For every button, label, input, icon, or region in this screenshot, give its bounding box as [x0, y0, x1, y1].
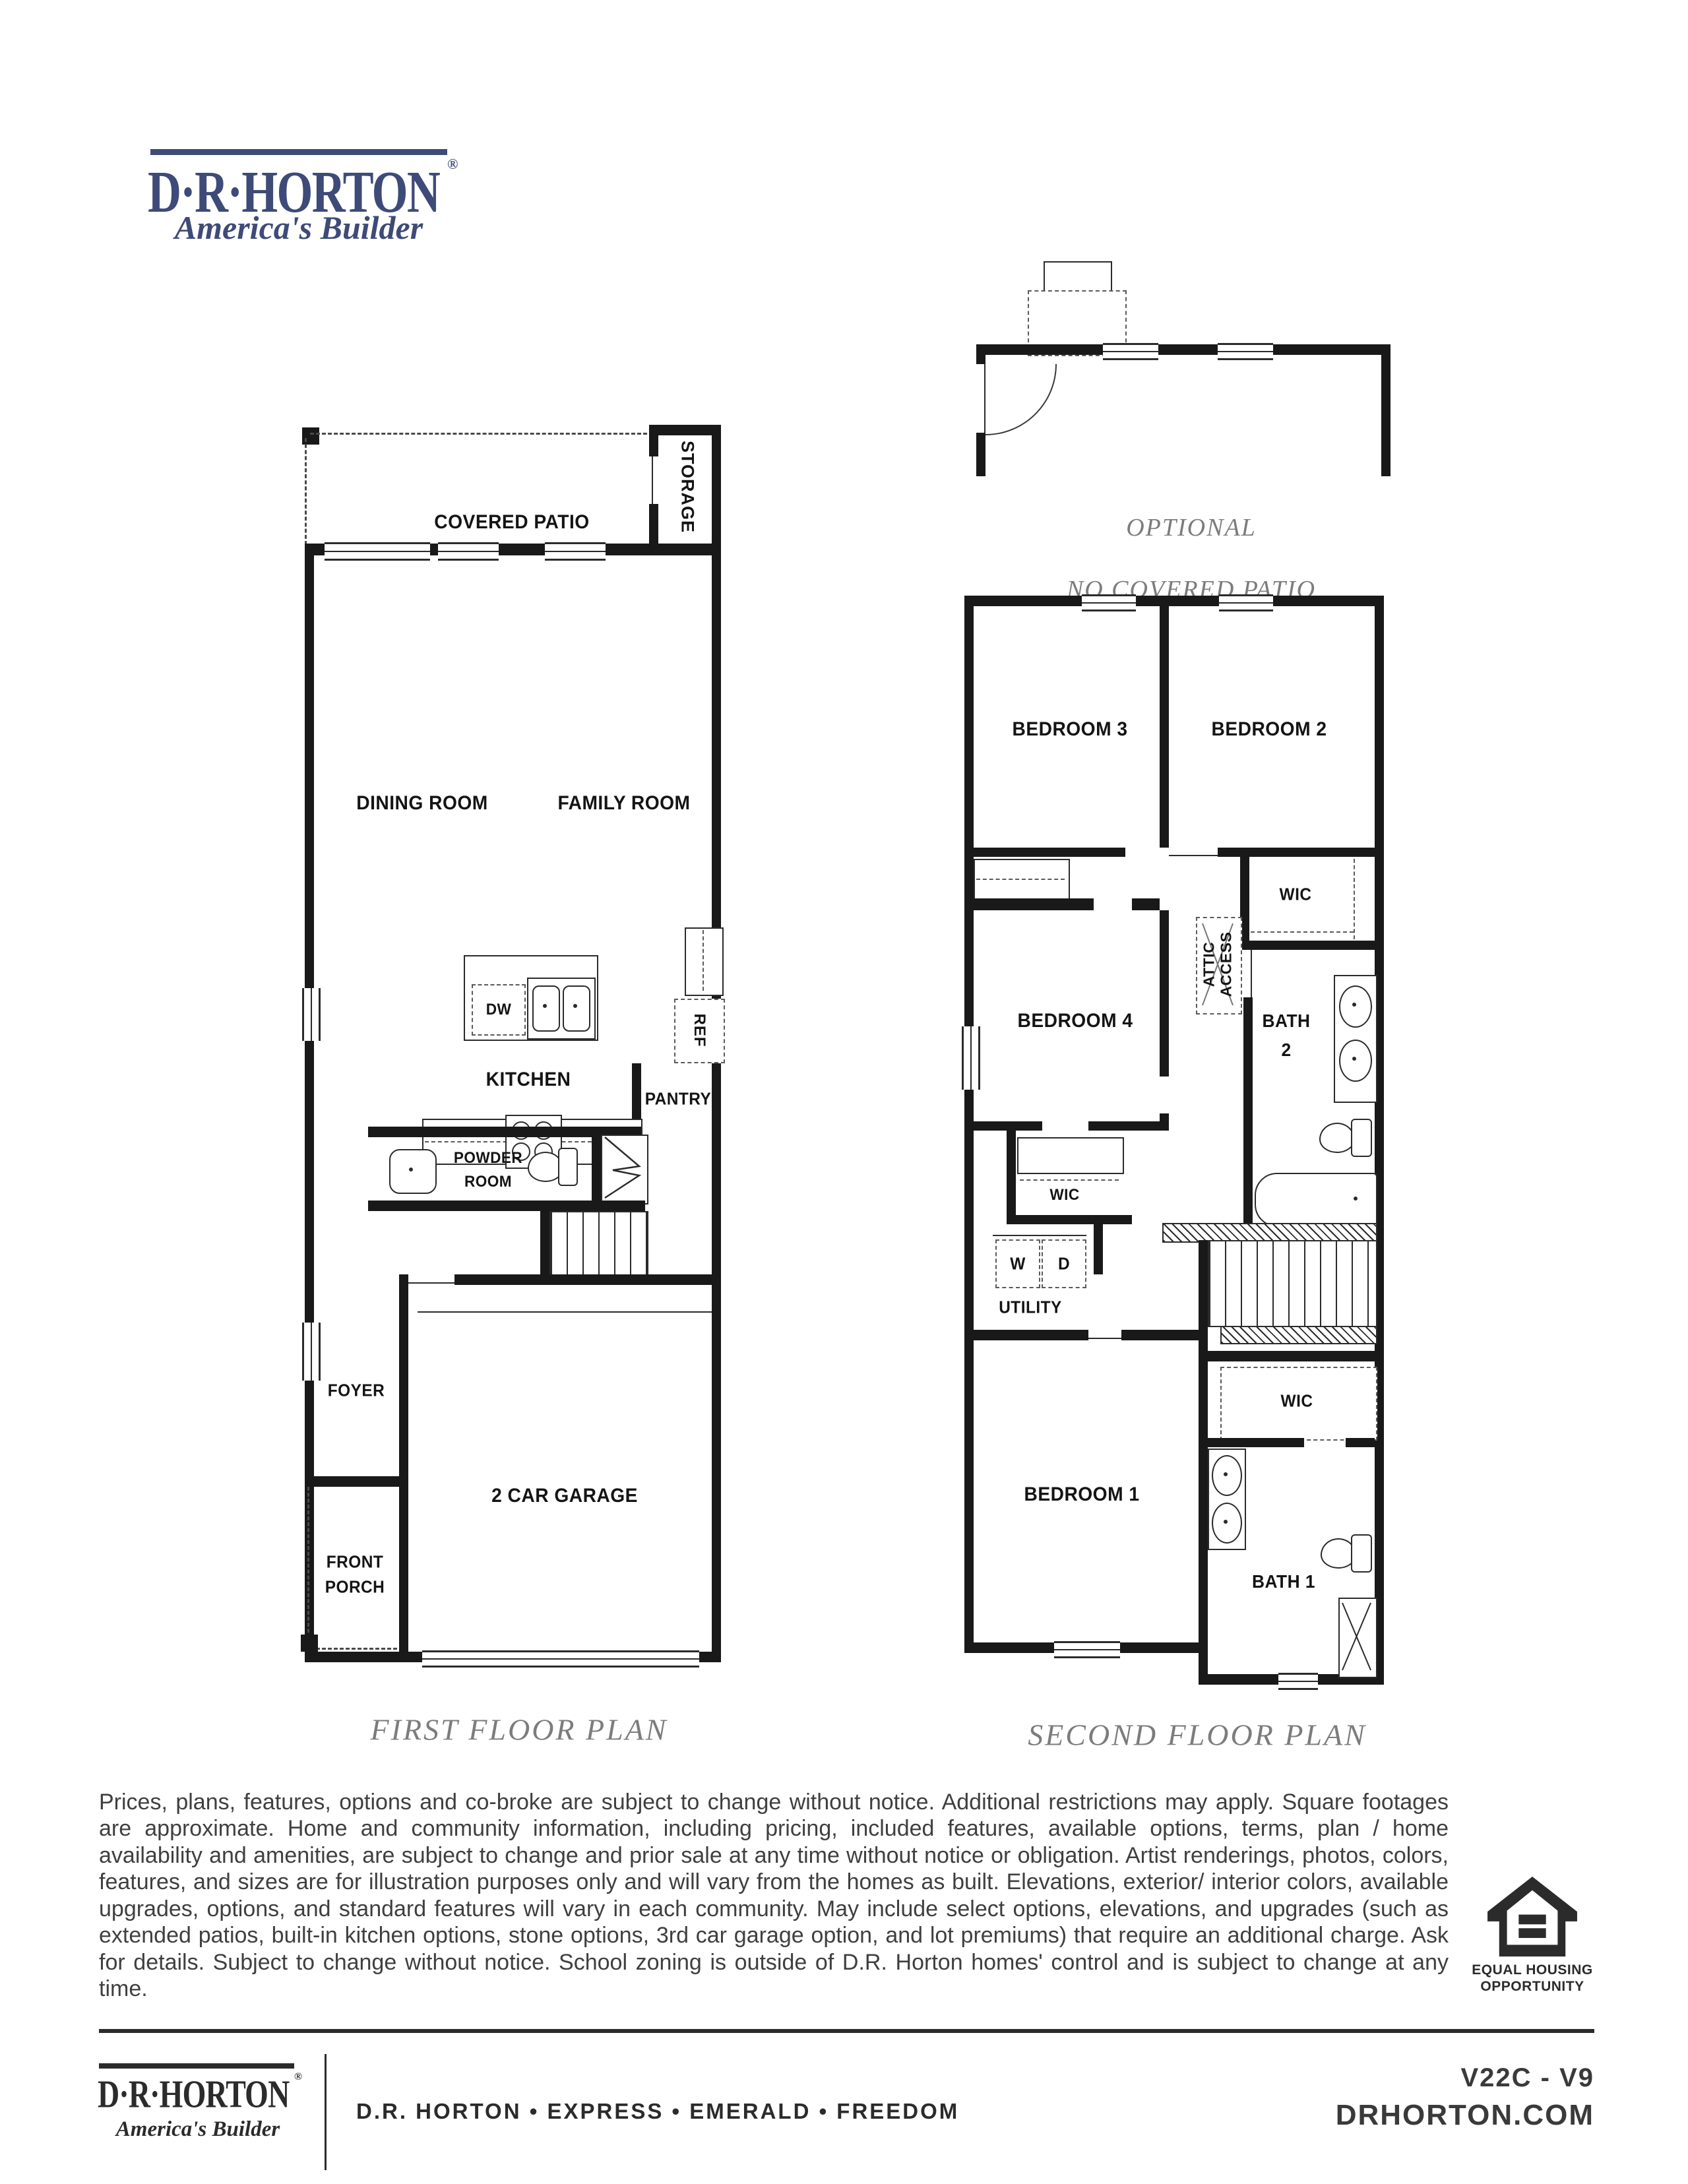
wall [368, 1127, 641, 1137]
footer-divider [325, 2054, 327, 2170]
room-label-kitchen: KITCHEN [486, 1069, 571, 1091]
wall [399, 1285, 408, 1662]
window [545, 542, 606, 561]
bathtub [1255, 1173, 1377, 1227]
footer-plan-code: V22C - V9 [1460, 2063, 1594, 2093]
garage-door [422, 1650, 699, 1668]
wall [1007, 1131, 1016, 1224]
window [962, 1026, 980, 1090]
wall [974, 848, 1125, 857]
eho-text-line1: EQUAL HOUSING [1472, 1962, 1592, 1978]
wall [976, 344, 1391, 355]
wall [368, 1201, 645, 1211]
room-label-family: FAMILY ROOM [557, 792, 690, 815]
sink-oval [1339, 985, 1372, 1028]
door-leaf [408, 1282, 454, 1284]
attic-access-label2: ACCESS [1218, 932, 1235, 997]
stairs [549, 1211, 648, 1277]
toilet-tank [1351, 1534, 1372, 1573]
faucet-dot [543, 1004, 547, 1008]
door-leaf [652, 456, 653, 504]
room-label-dining: DINING ROOM [356, 792, 487, 815]
window [302, 988, 321, 1041]
porch-edge-dashed [310, 1648, 397, 1650]
toilet-tank [1351, 1119, 1372, 1157]
tub-drain-dot [1354, 1197, 1358, 1201]
door-leaf [1251, 950, 1252, 997]
footer-brands: D.R. HORTON • EXPRESS • EMERALD • FREEDO… [356, 2099, 959, 2124]
sink-basin [563, 985, 590, 1032]
closet-shelf [1017, 1137, 1124, 1174]
logo-tagline: America's Builder [157, 208, 441, 247]
wall [1218, 848, 1375, 857]
wall [1346, 1438, 1375, 1447]
footer-logo-tagline: America's Builder [102, 2117, 294, 2142]
sliding-door [325, 542, 430, 561]
wall [1160, 606, 1169, 848]
washer-label: W [1010, 1254, 1026, 1274]
powder-sink [389, 1149, 437, 1194]
window [1218, 343, 1273, 360]
room-label-wic-bedroom1: WIC [1281, 1391, 1313, 1412]
garage-header-line [418, 1311, 712, 1313]
wall [305, 544, 314, 1662]
stairs [1208, 1240, 1377, 1327]
cabinet [685, 927, 724, 996]
closet-rod-dashed [1354, 859, 1355, 939]
wall [964, 596, 1384, 606]
wall [1160, 910, 1169, 1076]
wall [974, 898, 1094, 910]
wall [974, 1330, 1088, 1340]
wall [1007, 1215, 1132, 1224]
counter-line [993, 1235, 1086, 1236]
window [1082, 594, 1136, 611]
room-label-foyer: FOYER [328, 1381, 385, 1401]
wall [1240, 941, 1384, 950]
attic-access-label1: ATTIC [1201, 942, 1218, 987]
wall [649, 425, 721, 435]
wall [1375, 596, 1384, 1685]
room-label-garage: 2 CAR GARAGE [491, 1485, 638, 1507]
wall [1199, 1438, 1304, 1447]
footer-rule [99, 2029, 1594, 2033]
room-label-powder2: ROOM [464, 1173, 512, 1191]
equal-housing-house-icon [1483, 1875, 1582, 1960]
closet-rod-dashed [1251, 931, 1354, 933]
window [1103, 343, 1158, 360]
door-swing-arc [985, 364, 1057, 435]
wall [1132, 898, 1160, 910]
bifold-door [602, 1136, 644, 1201]
footer-logo-bar [99, 2063, 294, 2069]
refrigerator-label: REF [690, 1014, 708, 1047]
faucet-dot [573, 1004, 577, 1008]
wall [1199, 1351, 1384, 1361]
second-floor-caption: SECOND FLOOR PLAN [1028, 1718, 1367, 1753]
stair-hatch [1220, 1326, 1377, 1344]
cabinet-divider [703, 930, 704, 991]
room-label-storage: STORAGE [677, 441, 698, 533]
wall [1121, 1330, 1199, 1340]
sink-basin [532, 985, 560, 1032]
wall [1094, 1224, 1103, 1274]
porch-post [301, 1635, 318, 1652]
sink-oval [1339, 1040, 1372, 1082]
registered-mark-icon: ® [447, 156, 458, 173]
dishwasher-label: DW [486, 1001, 512, 1019]
closet-shelf [974, 859, 1070, 901]
wall [1381, 355, 1391, 476]
wall [964, 596, 974, 1653]
wall [305, 1476, 408, 1487]
room-label-covered-patio: COVERED PATIO [434, 511, 589, 534]
shower-x-marks [1338, 1598, 1375, 1675]
wall [1088, 1121, 1169, 1131]
door-leaf [1169, 855, 1218, 856]
patio-edge-dashed [310, 433, 653, 435]
wall [540, 1201, 549, 1274]
wall [974, 1121, 1042, 1131]
wall [1243, 997, 1253, 1224]
room-label-bath1: BATH 1 [1252, 1571, 1315, 1592]
closet-rod-dashed [976, 879, 1065, 880]
room-label-bedroom2: BEDROOM 2 [1211, 718, 1327, 741]
room-label-bedroom1: BEDROOM 1 [1024, 1483, 1139, 1506]
footer-registered-mark-icon: ® [294, 2071, 302, 2083]
room-label-utility: UTILITY [999, 1297, 1062, 1318]
room-label-porch1: FRONT [327, 1552, 384, 1573]
door-opening [649, 456, 658, 504]
first-floor-caption: FIRST FLOOR PLAN [371, 1712, 668, 1747]
patio-edge-dashed [305, 438, 307, 545]
window [1219, 594, 1273, 611]
window [1278, 1673, 1318, 1690]
wall [1199, 1240, 1208, 1685]
faucet-dot [1224, 1520, 1228, 1524]
toilet-tank [558, 1148, 578, 1186]
window [1054, 1641, 1120, 1658]
door-leaf [1088, 1338, 1121, 1339]
toilet-bowl [1319, 1123, 1355, 1153]
faucet-dot [1352, 1003, 1356, 1007]
room-label-bedroom3: BEDROOM 3 [1012, 718, 1127, 741]
faucet-dot [409, 1168, 413, 1171]
floorplan-brochure-page: D·R·HORTON ® America's Builder OPTIONAL … [0, 0, 1688, 2184]
room-label-wic-bedroom4: WIC [1049, 1186, 1079, 1204]
eho-text-line2: OPPORTUNITY [1480, 1979, 1584, 1995]
optional-caption-line1: OPTIONAL [1126, 513, 1257, 542]
room-label-bedroom4: BEDROOM 4 [1017, 1010, 1133, 1032]
room-label-wic-bedroom2: WIC [1280, 885, 1312, 905]
faucet-dot [1224, 1472, 1228, 1476]
room-label-porch2: PORCH [325, 1577, 385, 1598]
closet-rod-dashed [1020, 1179, 1119, 1181]
window [438, 542, 499, 561]
porch-edge-dashed [307, 1487, 309, 1650]
logo-bar [150, 149, 447, 155]
room-label-pantry: PANTRY [645, 1089, 712, 1109]
window [302, 1323, 321, 1381]
room-label-bath2b: 2 [1281, 1040, 1291, 1061]
dryer-label: D [1058, 1254, 1070, 1274]
wall [592, 1137, 601, 1202]
footer-logo-wordmark: D·R·HORTON [98, 2073, 289, 2117]
room-label-bath2a: BATH [1262, 1011, 1310, 1032]
faucet-dot [1352, 1057, 1356, 1061]
legal-disclaimer: Prices, plans, features, options and co-… [99, 1789, 1449, 2003]
footer-website-link[interactable]: DRHORTON.COM [1336, 2099, 1594, 2132]
room-label-powder1: POWDER [454, 1149, 522, 1168]
